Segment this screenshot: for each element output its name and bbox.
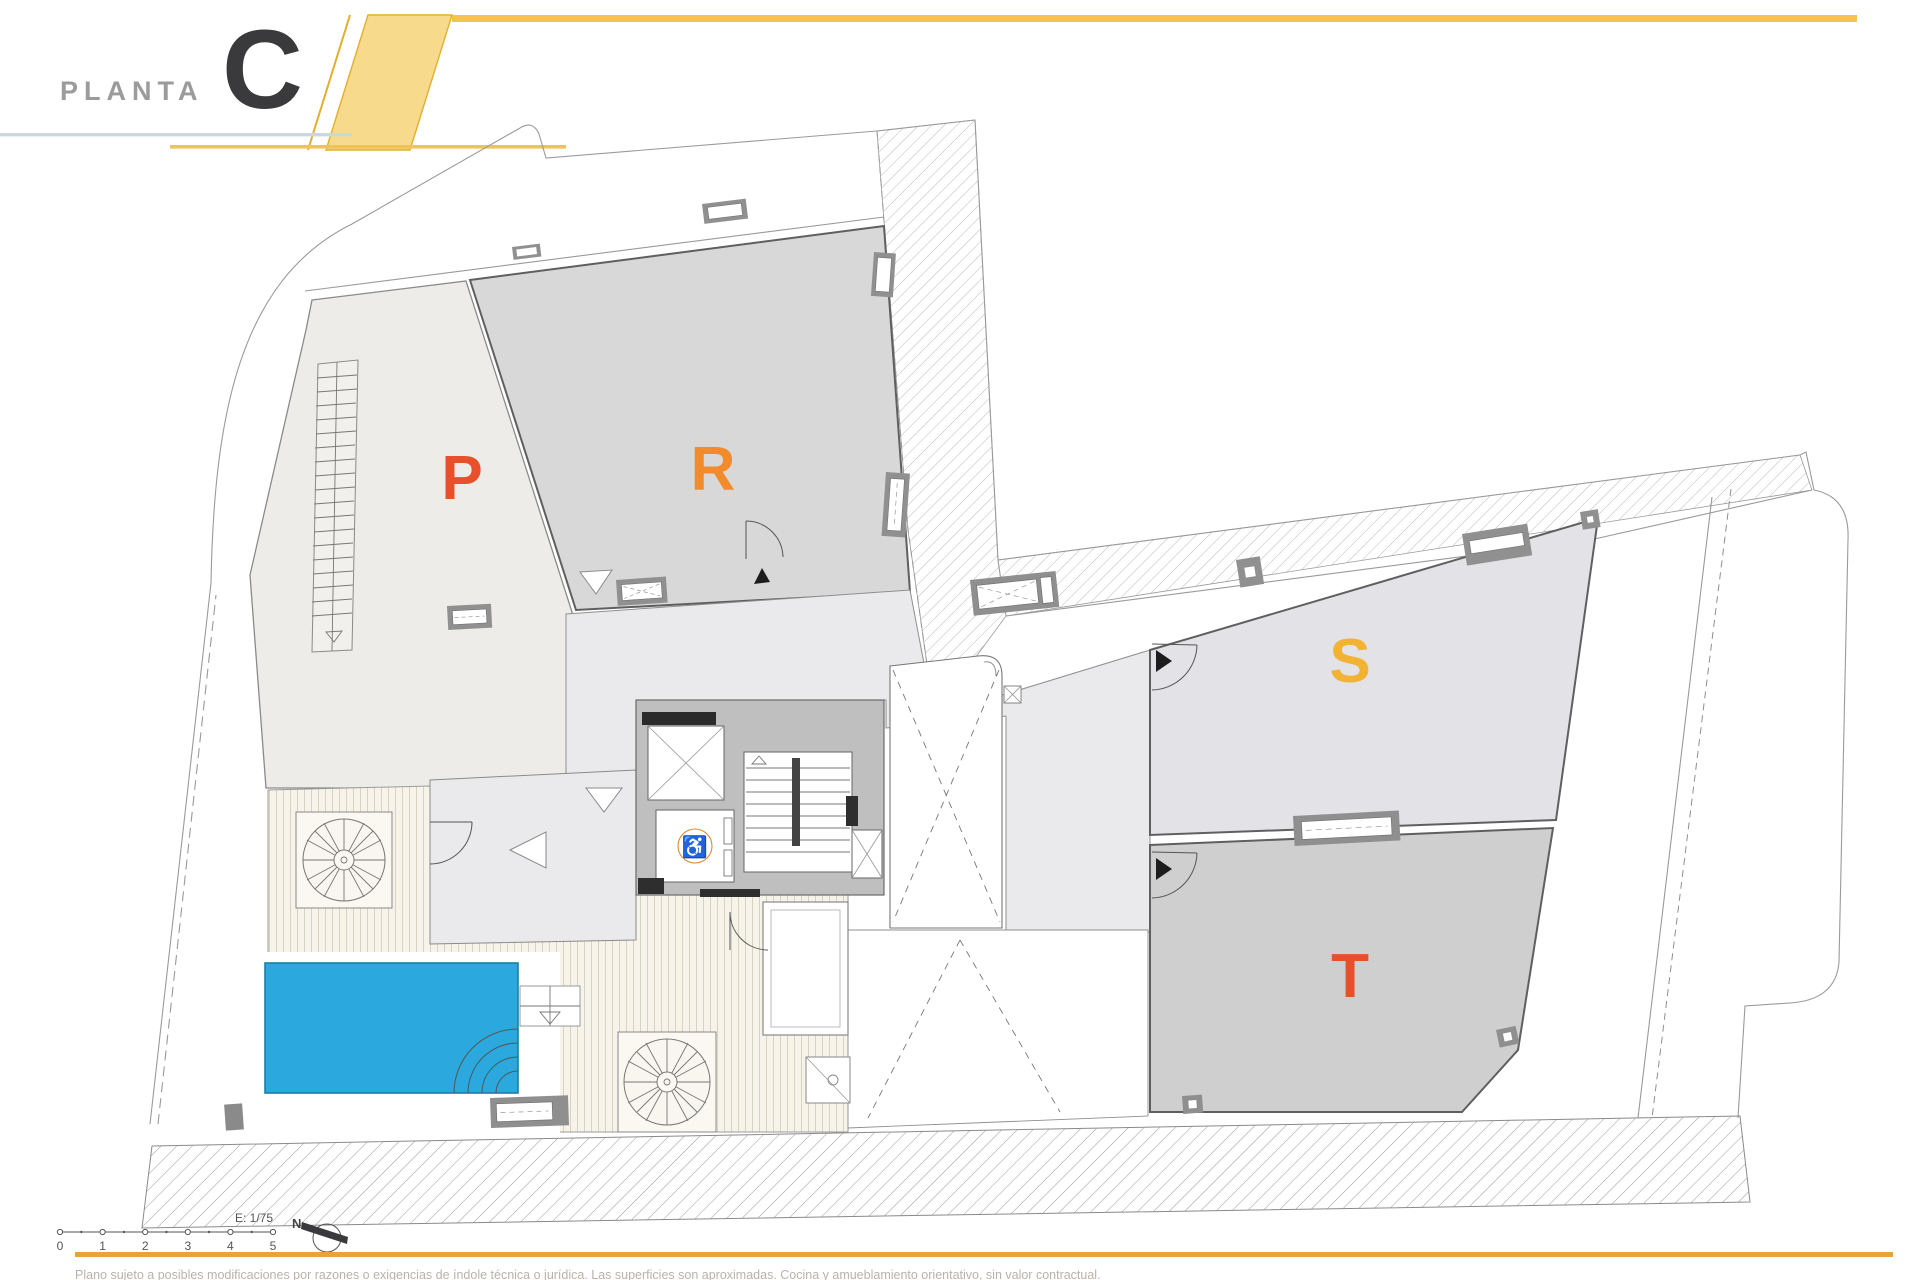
pool-steps-platform: [520, 986, 580, 1026]
window-r-right-2: [882, 472, 910, 538]
roof-window: [763, 902, 848, 1035]
tick-5: 5: [270, 1239, 277, 1253]
floor-plan: PLANTA C: [0, 0, 1920, 1280]
block-t-1: [1182, 1095, 1203, 1114]
tick-3: 3: [184, 1239, 191, 1253]
header-pale-rule: [0, 133, 352, 136]
footer-rule: [75, 1252, 1893, 1257]
skylight-p: [447, 604, 492, 630]
deck-bench: [490, 1095, 569, 1128]
unit-label-s: S: [1329, 627, 1370, 696]
tick-1: 1: [99, 1239, 106, 1253]
tick-0: 0: [57, 1239, 64, 1253]
window-s-small: [1236, 556, 1264, 587]
floor-letter: C: [222, 7, 303, 132]
corner-block-s: [1580, 509, 1601, 530]
unit-label-p: P: [441, 444, 482, 513]
small-shaft-x: [852, 830, 882, 878]
header-lower-rule: [170, 145, 566, 149]
tick-2: 2: [142, 1239, 149, 1253]
window-s-t-divider: [1293, 810, 1400, 846]
lower-void: [848, 930, 1148, 1128]
north-label: N: [292, 1216, 301, 1231]
header-top-rule: [452, 15, 1857, 22]
wheelchair-icon: ♿: [682, 834, 708, 859]
floor-plan-page: PLANTA C: [0, 0, 1920, 1280]
floor-label: PLANTA: [60, 76, 204, 106]
spiral-stair-2: [618, 1032, 716, 1132]
footer: Plano sujeto a posibles modificaciones p…: [75, 1252, 1893, 1280]
header-parallelogram: [326, 15, 452, 150]
building-core: ♿: [636, 700, 884, 897]
window-p-top: [512, 244, 541, 260]
window-r-top: [702, 199, 748, 224]
tick-4: 4: [227, 1239, 234, 1253]
boundary-post: [224, 1103, 244, 1130]
vent-box: [1004, 686, 1021, 703]
window-r-right-1: [871, 252, 896, 297]
unit-label-r: R: [691, 435, 736, 504]
disclaimer-text: Plano sujeto a posibles modificaciones p…: [75, 1268, 1101, 1280]
scale-label: E: 1/75: [235, 1211, 273, 1225]
core-staircase: [744, 752, 852, 872]
spiral-stair-1: [296, 812, 392, 908]
unit-label-t: T: [1331, 942, 1369, 1011]
outdoor-shower: [806, 1057, 850, 1103]
window-corridor-1: [616, 577, 668, 606]
exterior-stair-band: [312, 360, 358, 652]
vestibule: [430, 770, 636, 944]
accessible-lift: ♿: [656, 810, 734, 882]
